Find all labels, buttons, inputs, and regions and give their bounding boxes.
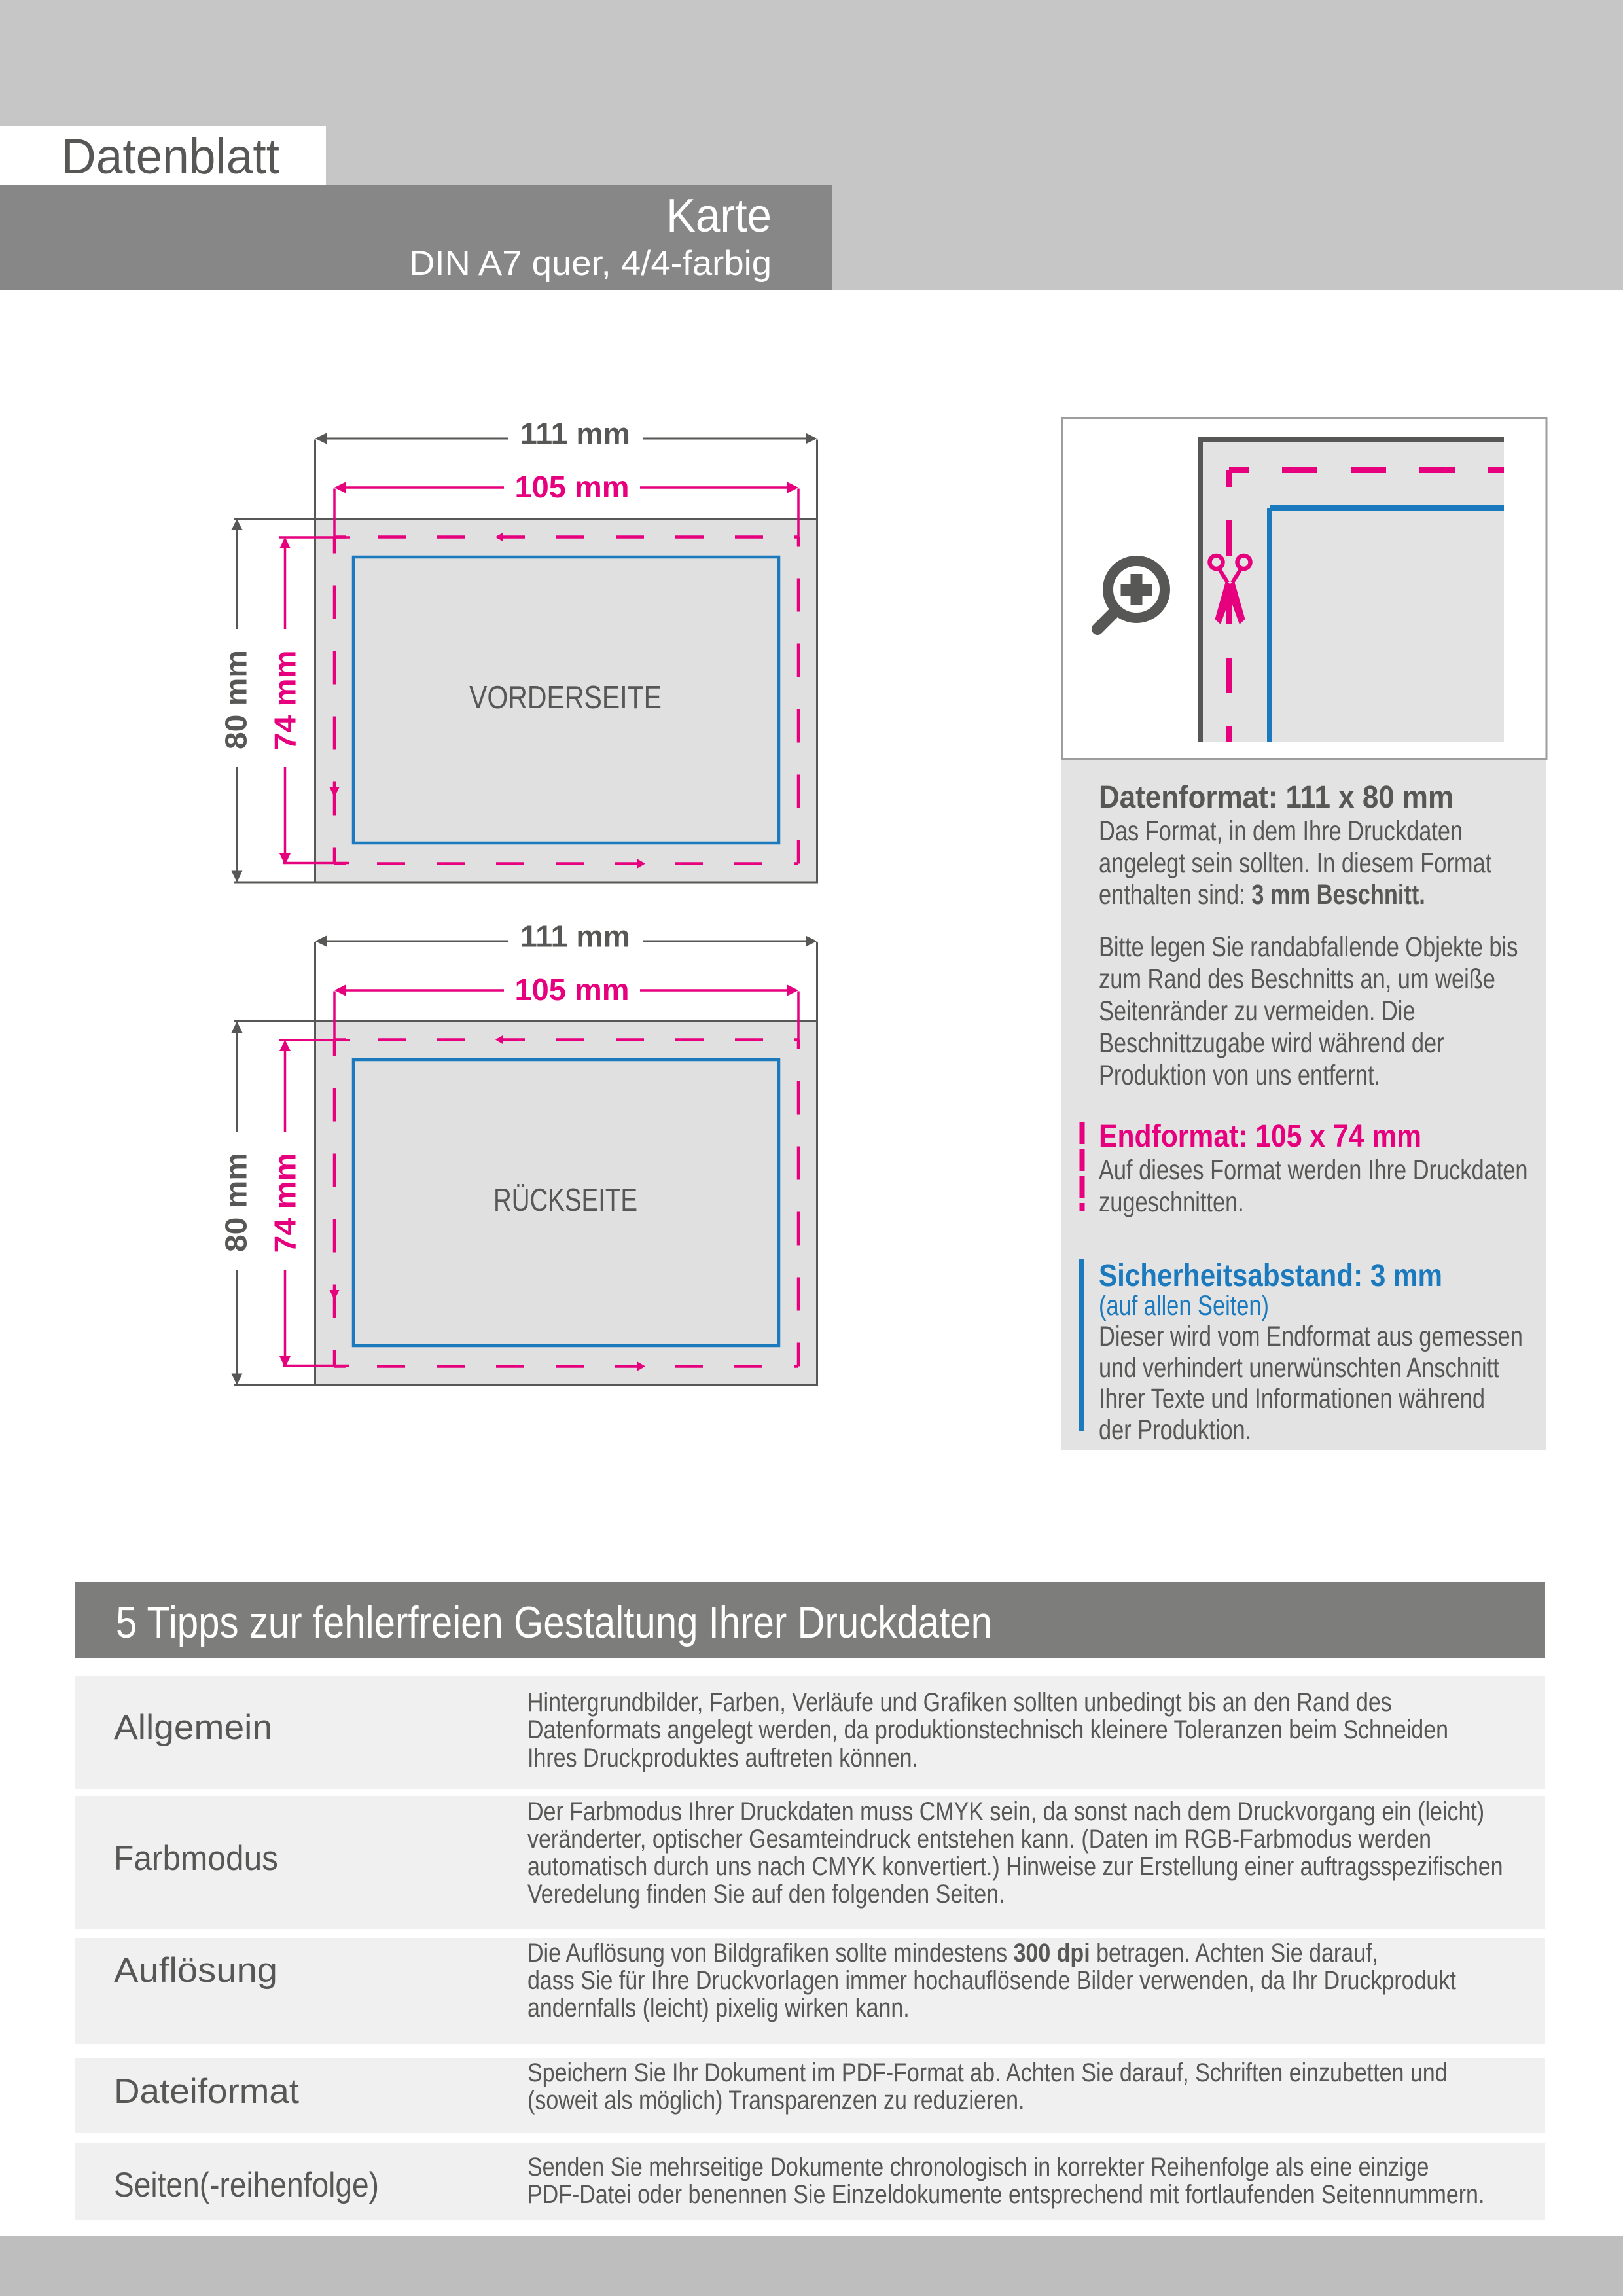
svg-text:Produktion von uns entfernt.: Produktion von uns entfernt.	[1099, 1060, 1380, 1090]
svg-text:zum Rand des Beschnitts an, um: zum Rand des Beschnitts an, um weiße	[1099, 963, 1495, 994]
svg-text:Dateiformat: Dateiformat	[114, 2072, 299, 2111]
svg-text:Karte: Karte	[666, 190, 772, 242]
svg-text:Hintergrundbilder, Farben, Ver: Hintergrundbilder, Farben, Verläufe und …	[527, 1687, 1392, 1716]
svg-text:Sicherheitsabstand: 3 mm: Sicherheitsabstand: 3 mm	[1099, 1259, 1442, 1293]
svg-text:Bitte legen Sie randabfallende: Bitte legen Sie randabfallende Objekte b…	[1099, 931, 1518, 962]
svg-text:Seiten(-reihenfolge): Seiten(-reihenfolge)	[114, 2166, 379, 2204]
svg-text:74 mm: 74 mm	[268, 651, 302, 751]
svg-text:74 mm: 74 mm	[268, 1153, 302, 1253]
svg-text:Endformat: 105 x 74 mm: Endformat: 105 x 74 mm	[1099, 1119, 1421, 1154]
svg-text:Auflösung: Auflösung	[114, 1951, 277, 1990]
svg-text:Der Farbmodus Ihrer Druckdaten: Der Farbmodus Ihrer Druckdaten muss CMYK…	[527, 1796, 1484, 1825]
svg-text:PDF-Datei oder benennen Sie Ei: PDF-Datei oder benennen Sie Einzeldokume…	[527, 2179, 1484, 2208]
svg-text:DIN A7 quer, 4/4-farbig: DIN A7 quer, 4/4-farbig	[409, 244, 772, 283]
svg-text:der Produktion.: der Produktion.	[1099, 1414, 1251, 1445]
svg-text:111 mm: 111 mm	[520, 920, 630, 954]
svg-text:zugeschnitten.: zugeschnitten.	[1099, 1187, 1244, 1217]
svg-text:(soweit als möglich) Transpare: (soweit als möglich) Transparenzen zu re…	[527, 2085, 1024, 2114]
svg-text:Speichern Sie Ihr Dokument im: Speichern Sie Ihr Dokument im PDF-Format…	[527, 2057, 1448, 2087]
svg-text:angelegt sein sollten. In dies: angelegt sein sollten. In diesem Format	[1099, 848, 1491, 878]
svg-text:VORDERSEITE: VORDERSEITE	[469, 680, 662, 715]
svg-text:80 mm: 80 mm	[219, 1153, 253, 1252]
svg-text:Dieser wird vom Endformat aus: Dieser wird vom Endformat aus gemessen	[1099, 1321, 1523, 1352]
svg-text:(auf allen Seiten): (auf allen Seiten)	[1099, 1290, 1269, 1321]
svg-text:veränderter, optischer Gesamte: veränderter, optischer Gesamteindruck en…	[527, 1823, 1431, 1853]
svg-text:Veredelung finden Sie auf den: Veredelung finden Sie auf den folgenden …	[527, 1878, 1005, 1908]
svg-text:andernfalls (leicht) pixelig w: andernfalls (leicht) pixelig wirken kann…	[527, 1992, 910, 2022]
svg-text:und verhindert unerwünschten A: und verhindert unerwünschten Anschnitt	[1099, 1352, 1499, 1383]
svg-text:RÜCKSEITE: RÜCKSEITE	[493, 1183, 637, 1218]
svg-text:Ihrer Texte und Informationen: Ihrer Texte und Informationen während	[1099, 1383, 1485, 1414]
svg-text:automatisch durch uns nach CMY: automatisch durch uns nach CMYK konverti…	[527, 1851, 1503, 1880]
svg-text:Auf dieses Format werden Ihre: Auf dieses Format werden Ihre Druckdaten	[1099, 1155, 1528, 1185]
svg-text:105 mm: 105 mm	[515, 470, 630, 504]
svg-text:Beschnittzugabe wird während d: Beschnittzugabe wird während der	[1099, 1028, 1444, 1058]
svg-text:Datenformats angelegt werden,: Datenformats angelegt werden, da produkt…	[527, 1714, 1448, 1744]
svg-text:Ihres Druckproduktes auftreten: Ihres Druckproduktes auftreten können.	[527, 1742, 918, 1772]
svg-text:dass Sie für Ihre Druckvorlage: dass Sie für Ihre Druckvorlagen immer ho…	[527, 1965, 1456, 1994]
svg-text:Senden Sie mehrseitige Dokumen: Senden Sie mehrseitige Dokumente chronol…	[527, 2151, 1429, 2181]
svg-text:111 mm: 111 mm	[520, 417, 630, 451]
svg-text:Seitenränder zu vermeiden. Die: Seitenränder zu vermeiden. Die	[1099, 996, 1416, 1026]
svg-text:5 Tipps zur fehlerfreien Gesta: 5 Tipps zur fehlerfreien Gestaltung Ihre…	[116, 1598, 992, 1647]
svg-text:80 mm: 80 mm	[219, 650, 253, 749]
svg-text:Datenblatt: Datenblatt	[62, 129, 279, 185]
svg-text:Datenformat: 111 x 80 mm: Datenformat: 111 x 80 mm	[1099, 780, 1454, 815]
svg-text:Allgemein: Allgemein	[114, 1708, 272, 1747]
svg-text:Das Format, in dem Ihre Druckd: Das Format, in dem Ihre Druckdaten	[1099, 816, 1463, 846]
svg-text:enthalten sind: 3 mm Beschnitt: enthalten sind: 3 mm Beschnitt.	[1099, 879, 1425, 910]
svg-text:Die Auflösung von Bildgrafiken: Die Auflösung von Bildgrafiken sollte mi…	[527, 1937, 1378, 1967]
svg-text:Farbmodus: Farbmodus	[114, 1839, 278, 1878]
svg-text:105 mm: 105 mm	[515, 973, 630, 1007]
